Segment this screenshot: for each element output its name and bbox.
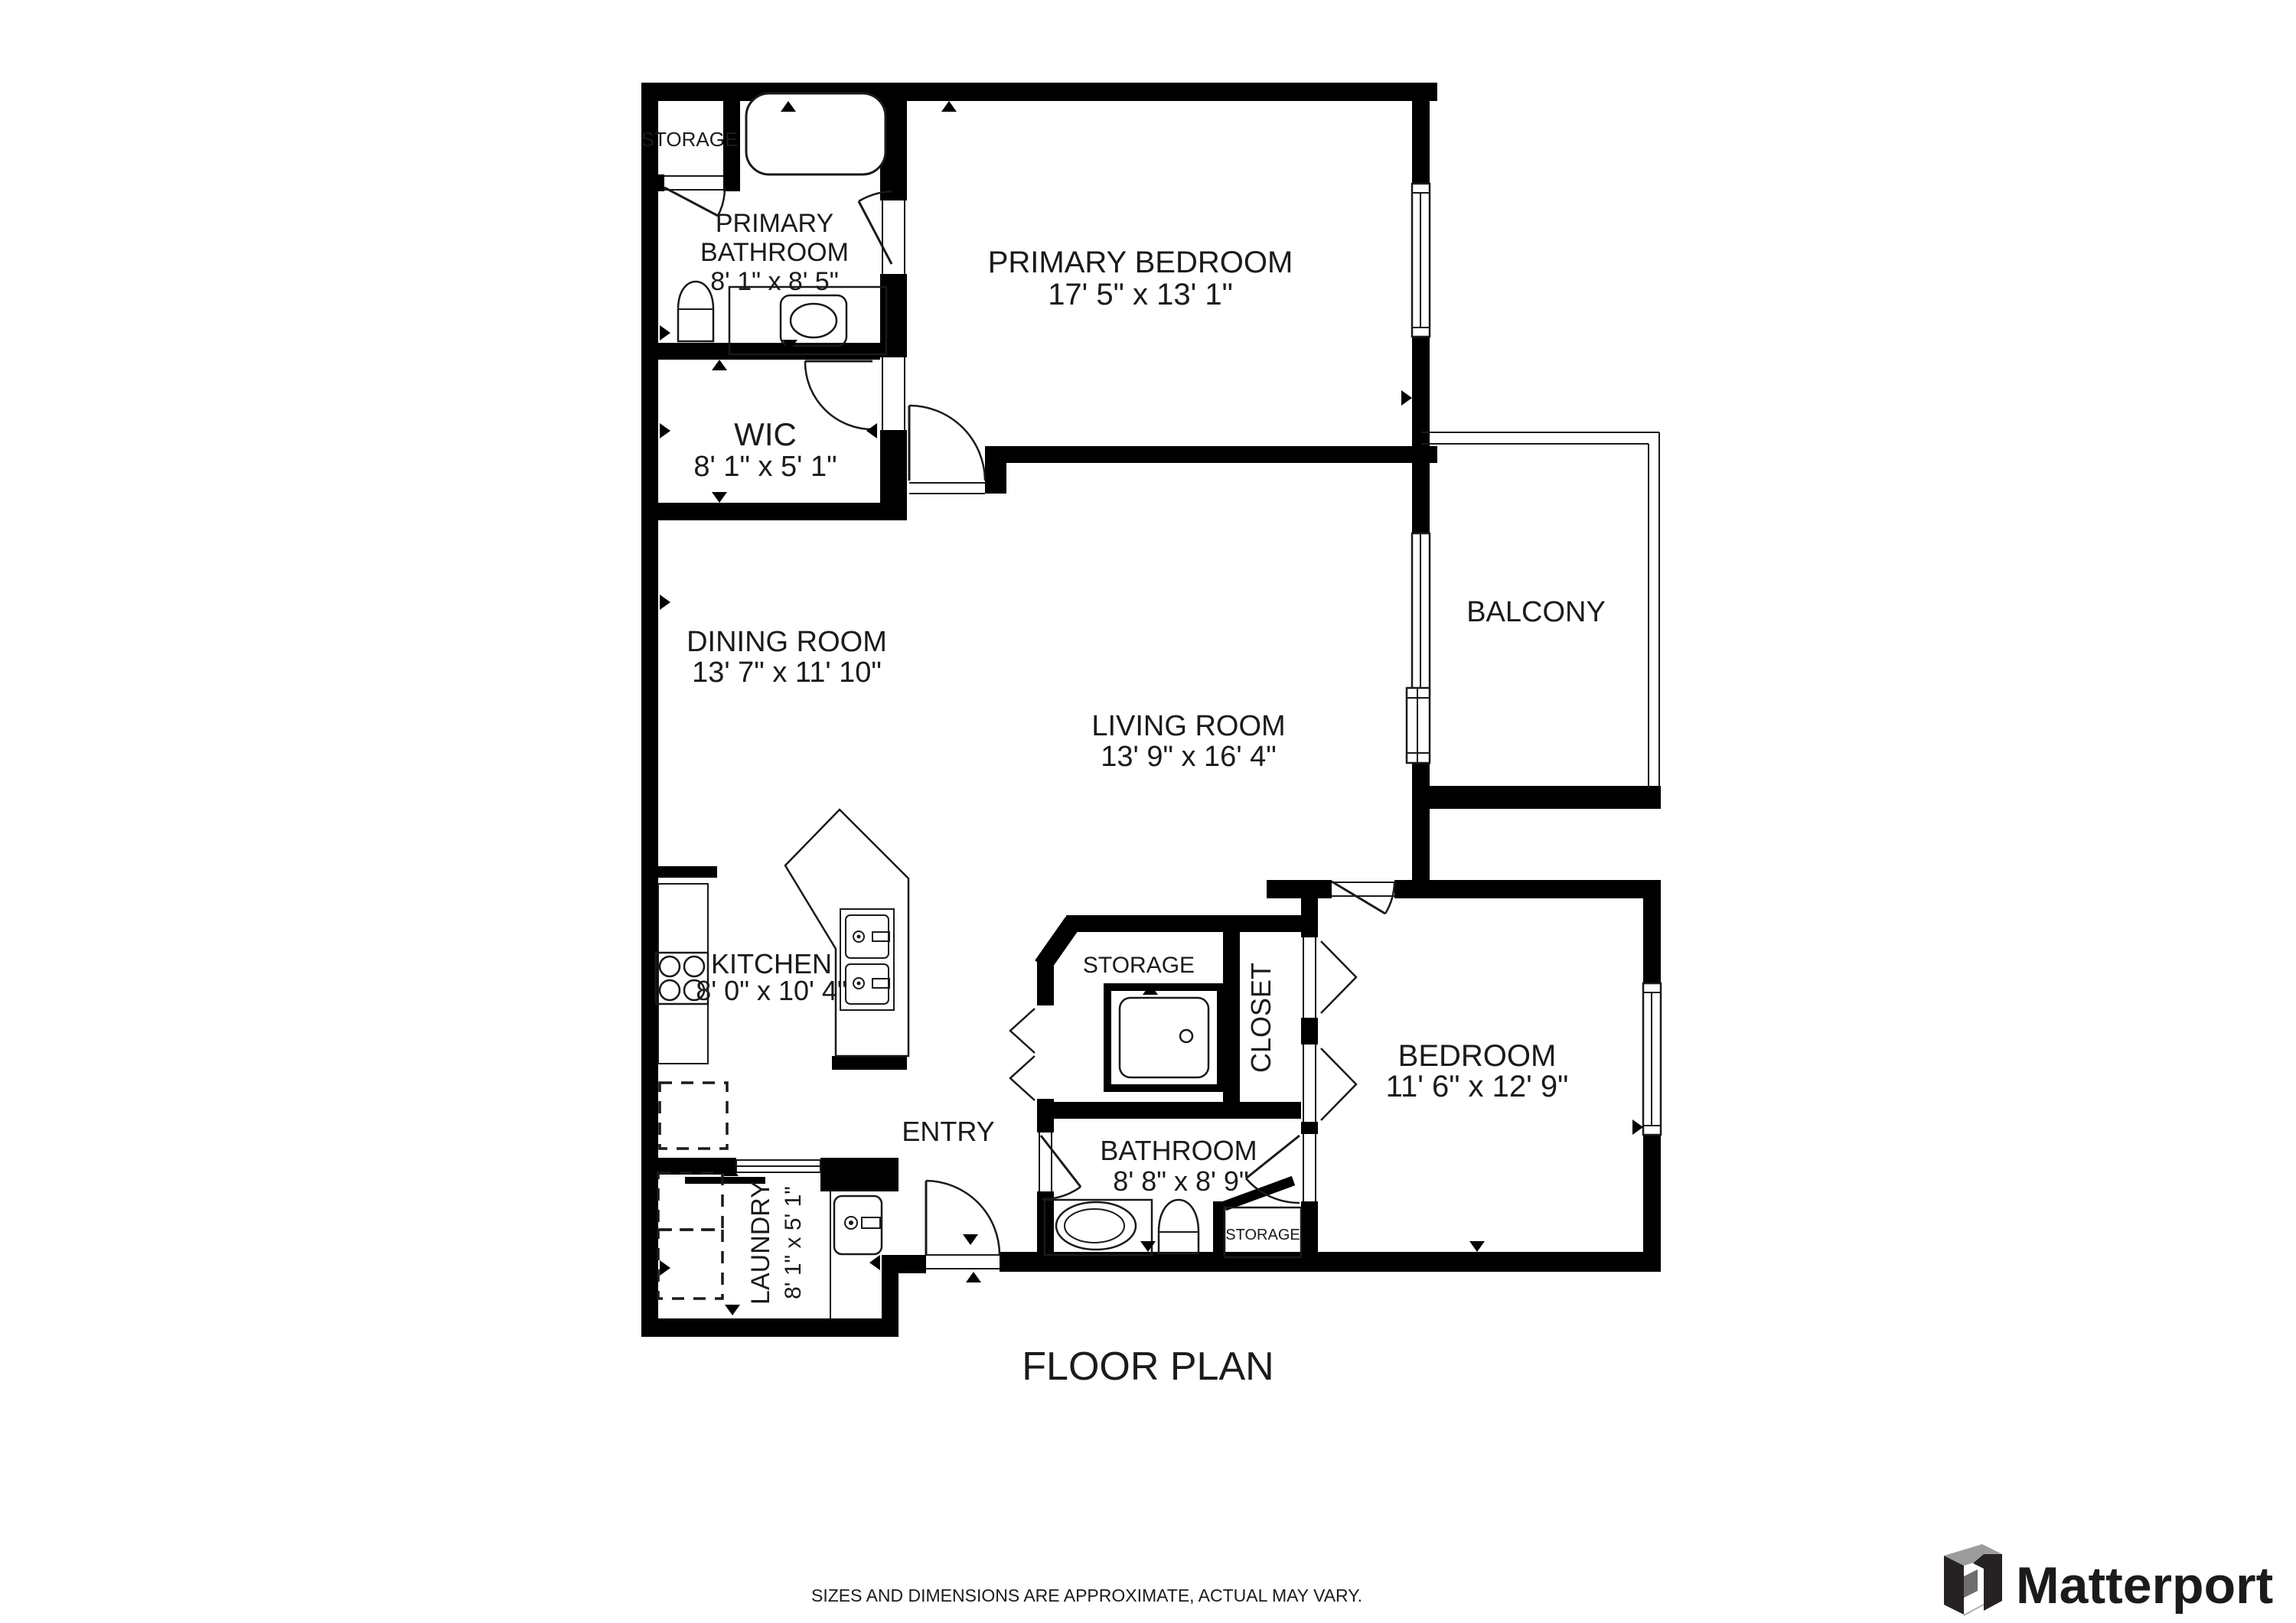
threshold-primary-bedroom [909, 481, 985, 496]
label-dining-room-dims: 13' 7" x 11' 10" [692, 657, 882, 689]
label-primary-bathroom-2: BATHROOM [700, 238, 849, 267]
label-kitchen-dims: 8' 0" x 10' 4" [696, 975, 846, 1006]
threshold-storage-upper [664, 174, 723, 191]
matterport-logo-icon [1944, 1544, 2002, 1616]
label-balcony: BALCONY [1466, 596, 1606, 628]
vanity-bathroom [1045, 1200, 1152, 1255]
toilet-primary-bathroom [678, 282, 713, 341]
sliding-door-living-room [1407, 688, 1430, 763]
disclaimer-text: SIZES AND DIMENSIONS ARE APPROXIMATE, AC… [811, 1586, 1362, 1605]
kitchen-counter-left [656, 884, 708, 1064]
label-entry: ENTRY [902, 1116, 994, 1147]
label-wic-dims: 8' 1" x 5' 1" [693, 451, 837, 483]
door-primary-bedroom [909, 406, 985, 481]
shower [1107, 987, 1221, 1088]
threshold-wic [880, 357, 907, 430]
label-bedroom: BEDROOM [1398, 1039, 1557, 1073]
page-title: FLOOR PLAN [1022, 1344, 1274, 1389]
washer-dryer-dashed [658, 1083, 727, 1299]
label-primary-bathroom-1: PRIMARY [716, 209, 833, 238]
windows [1407, 184, 1661, 1135]
door-entry [926, 1181, 1000, 1255]
toilet-bathroom [1159, 1200, 1199, 1253]
kitchen-peninsula [785, 810, 908, 1056]
floor-plan-page: STORAGE PRIMARY BATHROOM 8' 1" x 8' 5" P… [0, 0, 2296, 1623]
label-laundry-dims: 8' 1" x 5' 1" [781, 1186, 806, 1299]
threshold-primary-bathroom [880, 200, 907, 274]
threshold-entry [926, 1252, 1000, 1272]
label-living-room: LIVING ROOM [1091, 710, 1285, 742]
label-bathroom: BATHROOM [1100, 1135, 1257, 1166]
kitchen-sink [840, 909, 894, 1010]
room-labels: STORAGE PRIMARY BATHROOM 8' 1" x 8' 5" P… [641, 128, 1606, 1305]
label-primary-bedroom: PRIMARY BEDROOM [988, 246, 1293, 279]
bathtub [746, 93, 885, 174]
matterport-logo-text: Matterport [2016, 1556, 2273, 1615]
window-living-room [1412, 533, 1430, 694]
threshold-bath-bedroom [1301, 1134, 1318, 1201]
label-closet: CLOSET [1245, 963, 1277, 1073]
threshold-closet-door-2 [1301, 1045, 1318, 1122]
threshold-bedroom [1332, 880, 1394, 898]
floor-plan-drawing: STORAGE PRIMARY BATHROOM 8' 1" x 8' 5" P… [0, 0, 2296, 1623]
label-living-room-dims: 13' 9" x 16' 4" [1101, 741, 1277, 773]
matterport-logo: Matterport [1944, 1544, 2273, 1616]
bifold-closet [1321, 941, 1356, 1120]
window-bedroom [1643, 983, 1661, 1135]
label-primary-bathroom-dims: 8' 1" x 8' 5" [710, 267, 839, 296]
label-bedroom-dims: 11' 6" x 12' 9" [1386, 1070, 1569, 1103]
label-storage-bath: STORAGE [1225, 1227, 1300, 1243]
bifold-storage-hall [1010, 1009, 1035, 1100]
door-wic [805, 361, 873, 429]
threshold-closet-door-1 [1301, 937, 1318, 1018]
label-laundry: LAUNDRY [746, 1181, 775, 1305]
laundry-sink [834, 1196, 882, 1254]
label-wic: WIC [734, 416, 797, 452]
label-storage-upper: STORAGE [641, 128, 739, 151]
sliding-door-laundry [736, 1160, 820, 1172]
label-bathroom-dims: 8' 8" x 8' 9" [1113, 1165, 1248, 1197]
window-primary-bedroom [1412, 184, 1430, 337]
label-dining-room: DINING ROOM [687, 626, 887, 658]
label-storage-hall: STORAGE [1083, 953, 1195, 978]
label-primary-bedroom-dims: 17' 5" x 13' 1" [1048, 278, 1233, 311]
